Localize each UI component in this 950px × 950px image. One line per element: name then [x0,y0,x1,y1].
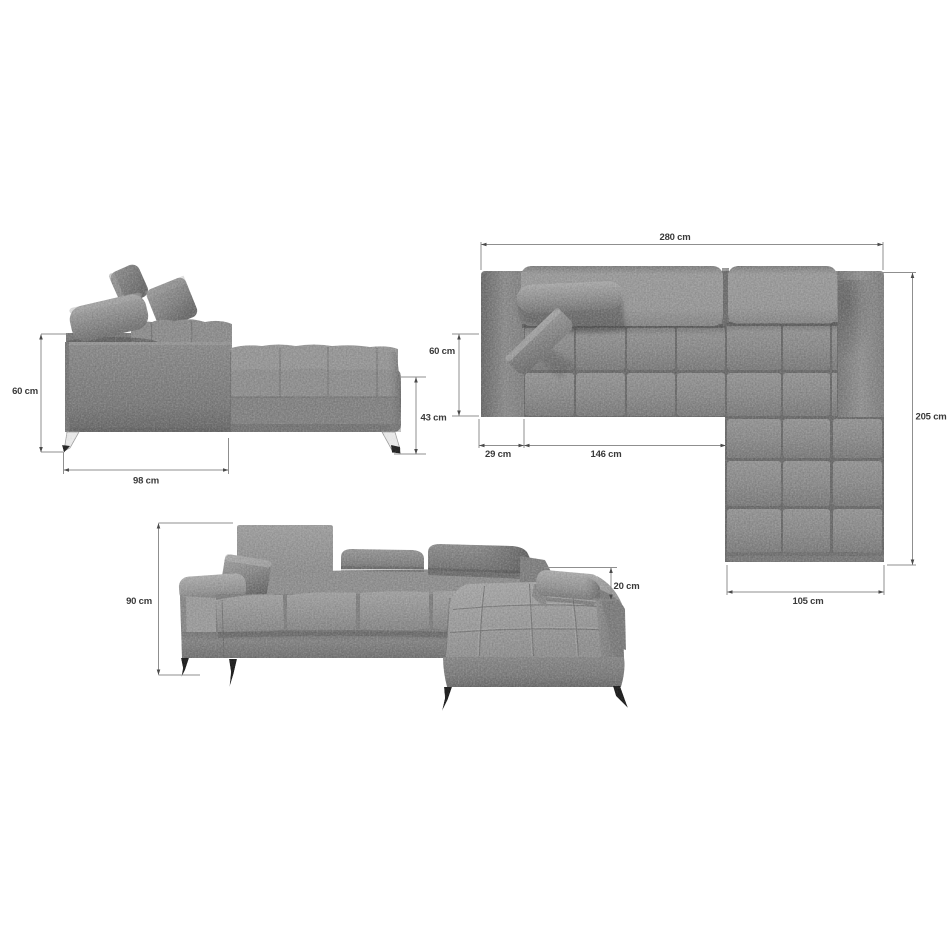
svg-text:90 cm: 90 cm [126,596,152,607]
svg-text:60 cm: 60 cm [429,346,455,357]
svg-text:205 cm: 205 cm [916,412,947,423]
svg-text:43 cm: 43 cm [421,413,447,424]
svg-text:280 cm: 280 cm [659,232,690,243]
svg-text:98 cm: 98 cm [133,476,159,487]
svg-text:105 cm: 105 cm [792,596,823,607]
svg-text:29 cm: 29 cm [485,449,511,460]
svg-text:60 cm: 60 cm [12,386,38,397]
svg-text:146 cm: 146 cm [590,449,621,460]
svg-text:20 cm: 20 cm [614,581,640,592]
